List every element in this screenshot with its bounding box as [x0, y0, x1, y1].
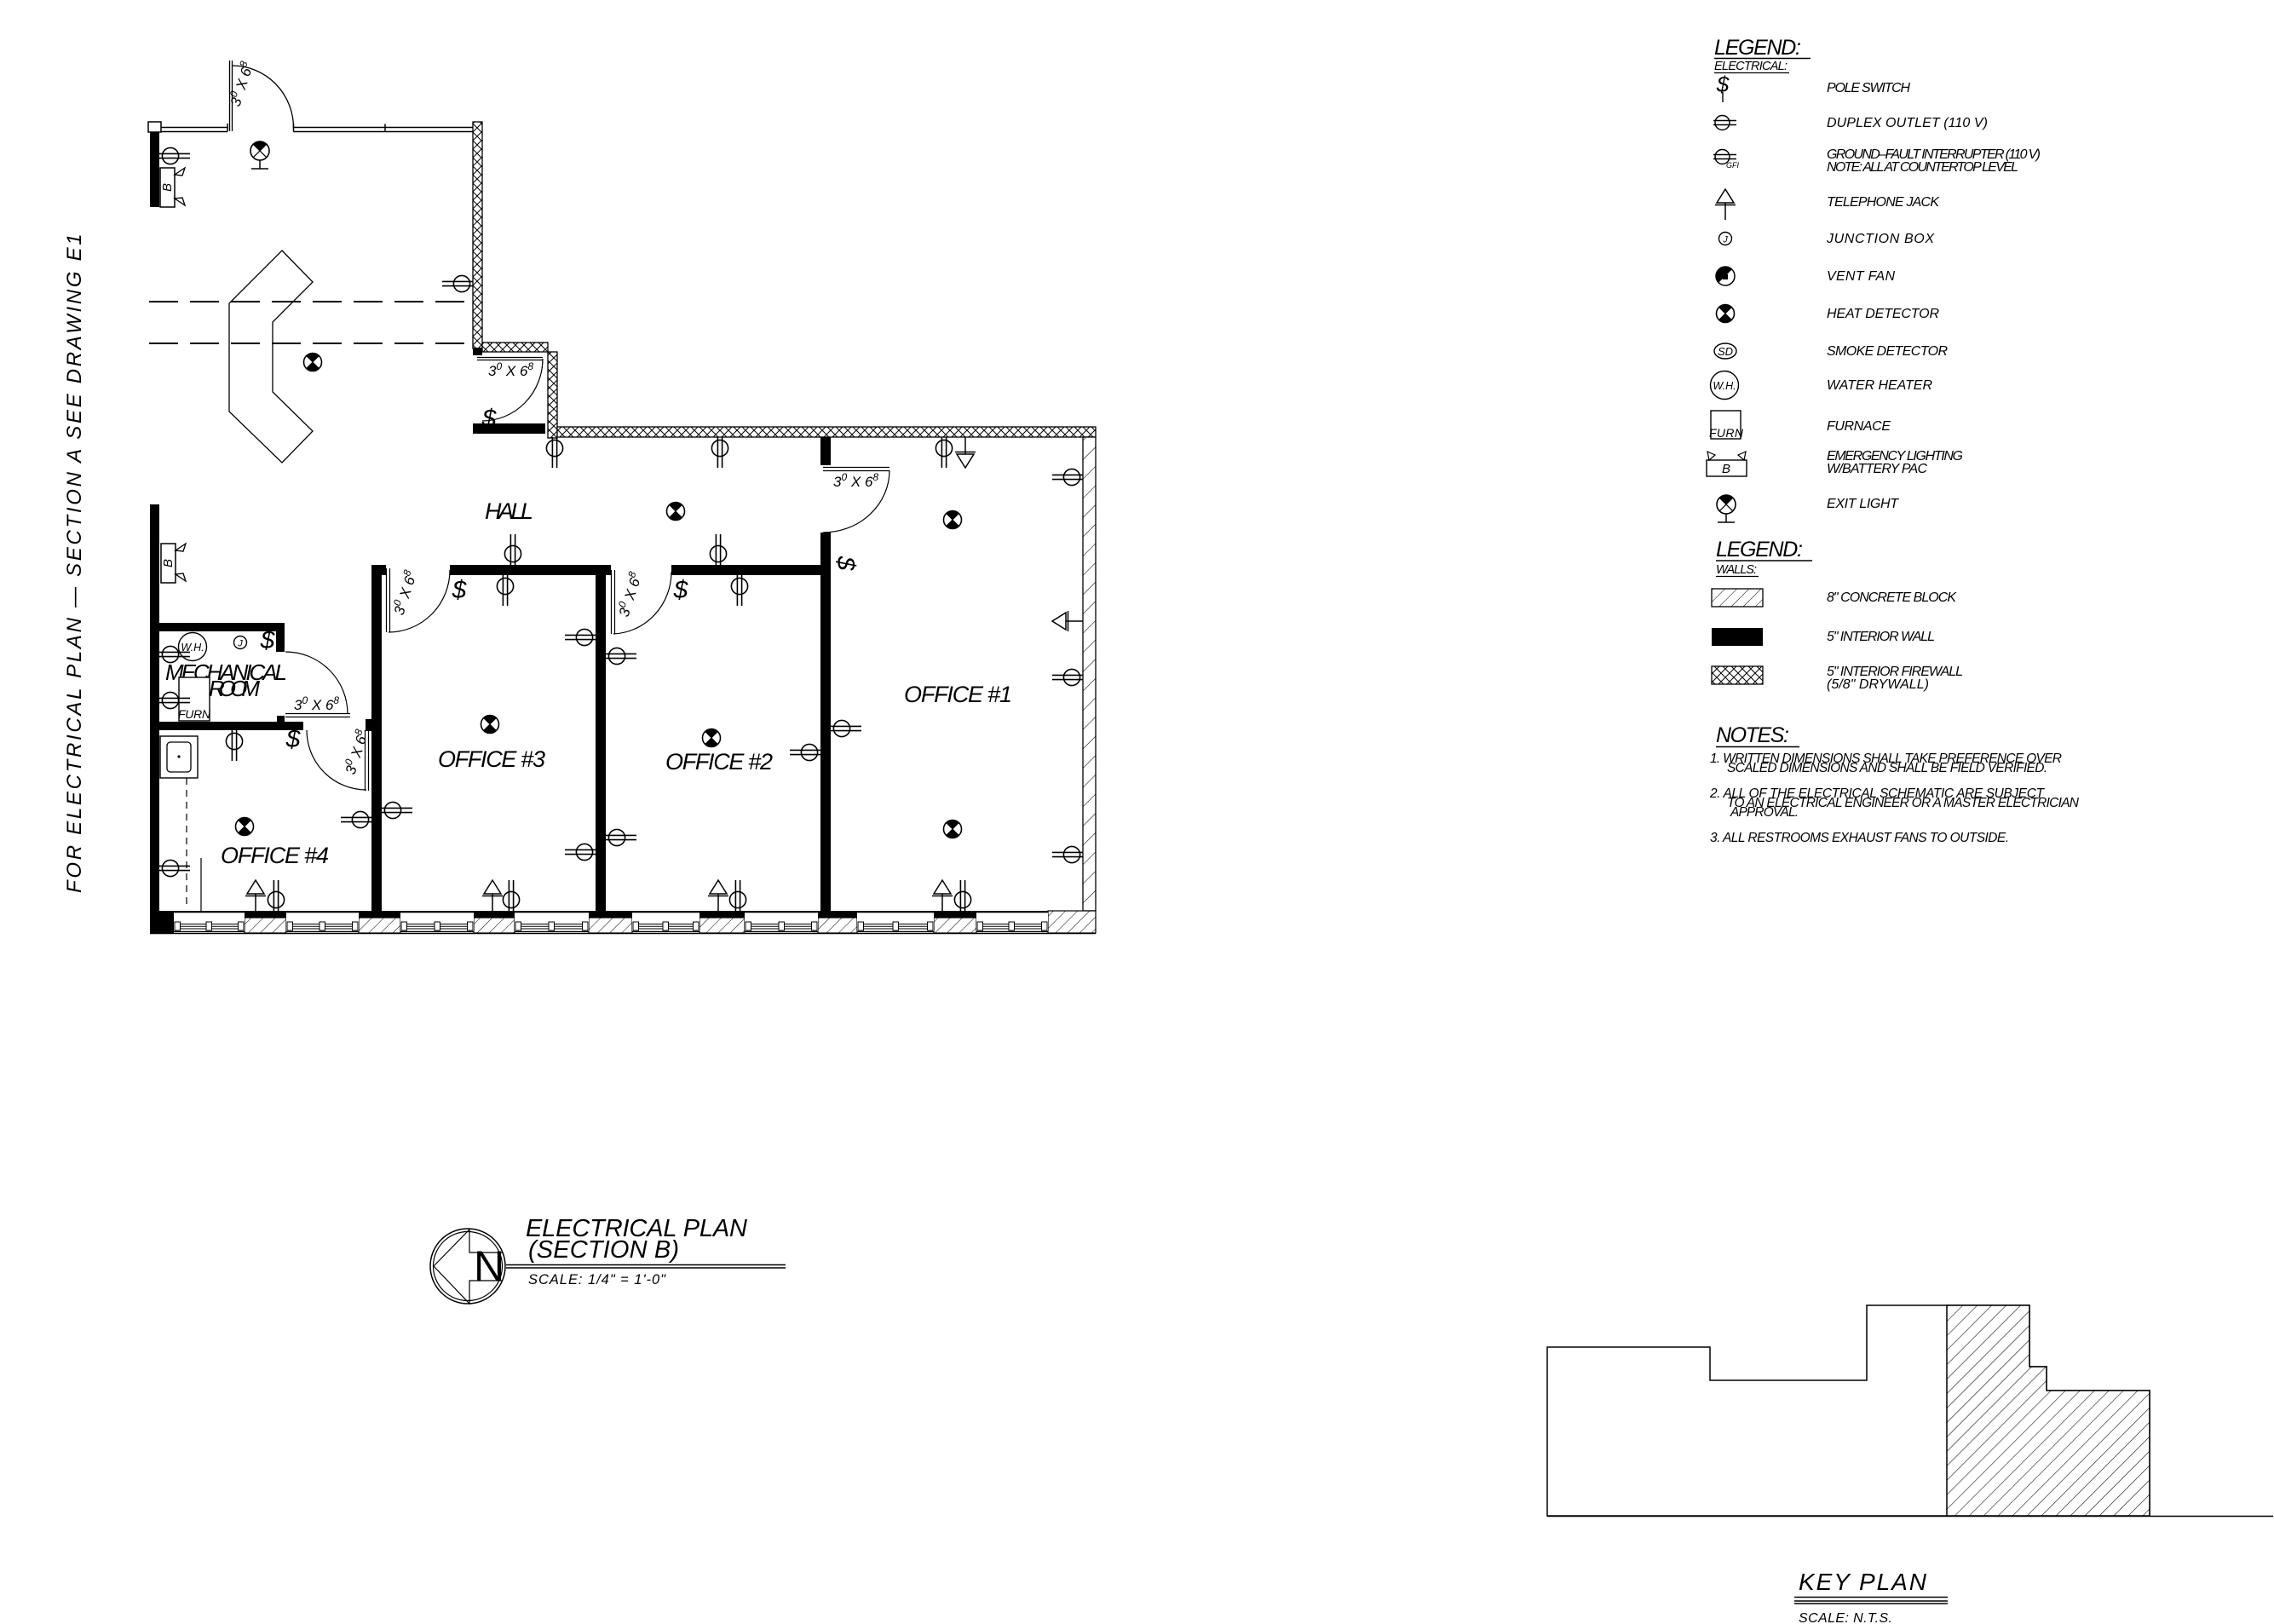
svg-text:(SECTION B): (SECTION B) [528, 1236, 680, 1264]
svg-text:B: B [161, 559, 176, 567]
svg-text:NOTE: ALL AT COUNTERTOP LEVEL: NOTE: ALL AT COUNTERTOP LEVEL [1827, 160, 2018, 175]
svg-text:OFFICE #3: OFFICE #3 [438, 746, 545, 772]
svg-text:B: B [1722, 462, 1730, 476]
svg-text:30 X 68: 30 X 68 [833, 471, 878, 490]
svg-text:(5/8" DRYWALL): (5/8" DRYWALL) [1827, 677, 1929, 692]
svg-text:30 X 68: 30 X 68 [294, 694, 339, 713]
svg-text:5" INTERIOR WALL: 5" INTERIOR WALL [1827, 630, 1935, 644]
svg-text:FURN: FURN [178, 707, 211, 721]
svg-text:VENT FAN: VENT FAN [1827, 269, 1895, 284]
svg-text:OFFICE #2: OFFICE #2 [665, 749, 773, 775]
svg-text:OFFICE #4: OFFICE #4 [221, 843, 329, 868]
svg-text:30 X 68: 30 X 68 [488, 360, 533, 379]
svg-text:J: J [1722, 235, 1728, 245]
svg-text:GFI: GFI [1726, 161, 1739, 170]
svg-text:WATER HEATER: WATER HEATER [1827, 378, 1932, 393]
svg-text:B: B [160, 183, 175, 192]
svg-text:LEGEND:: LEGEND: [1716, 538, 1804, 561]
svg-text:SD: SD [1718, 345, 1733, 358]
svg-text:J: J [237, 639, 243, 649]
svg-text:FURN: FURN [1709, 426, 1744, 440]
svg-text:NOTES:: NOTES: [1716, 723, 1790, 747]
svg-text:KEY PLAN: KEY PLAN [1799, 1569, 1928, 1595]
svg-text:8" CONCRETE BLOCK: 8" CONCRETE BLOCK [1827, 590, 1957, 605]
svg-text:N: N [474, 1242, 504, 1290]
svg-text:WALLS:: WALLS: [1716, 563, 1757, 577]
svg-text:ROOM: ROOM [209, 676, 260, 701]
svg-text:W/BATTERY PAC: W/BATTERY PAC [1827, 462, 1927, 476]
svg-text:HEAT DETECTOR: HEAT DETECTOR [1827, 307, 1939, 321]
svg-text:HALL: HALL [485, 498, 536, 524]
svg-text:SMOKE DETECTOR: SMOKE DETECTOR [1827, 344, 1948, 359]
svg-text:SCALED DIMENSIONS AND SHALL BE: SCALED DIMENSIONS AND SHALL BE FIELD VER… [1727, 761, 2047, 775]
svg-text:W.H.: W.H. [1713, 380, 1736, 392]
svg-text:FURNACE: FURNACE [1827, 419, 1891, 434]
svg-text:POLE SWITCH: POLE SWITCH [1827, 81, 1910, 95]
svg-text:OFFICE #1: OFFICE #1 [904, 682, 1012, 707]
svg-text:FOR ELECTRICAL PLAN — SECTION: FOR ELECTRICAL PLAN — SECTION A SEE DRAW… [63, 232, 86, 893]
svg-text:SCALE: N.T.S.: SCALE: N.T.S. [1799, 1611, 1892, 1624]
svg-text:JUNCTION BOX: JUNCTION BOX [1826, 232, 1935, 246]
svg-text:DUPLEX OUTLET (110 V): DUPLEX OUTLET (110 V) [1827, 116, 1988, 130]
svg-text:APPROVAL.: APPROVAL. [1730, 805, 1799, 820]
svg-text:EXIT LIGHT: EXIT LIGHT [1827, 497, 1899, 511]
svg-text:3. ALL RESTROOMS EXHAUST FANS: 3. ALL RESTROOMS EXHAUST FANS TO OUTSIDE… [1710, 831, 2009, 845]
svg-text:LEGEND:: LEGEND: [1714, 36, 1802, 60]
svg-text:TELEPHONE JACK: TELEPHONE JACK [1827, 195, 1940, 210]
svg-text:SCALE: 1/4" = 1'-0": SCALE: 1/4" = 1'-0" [528, 1272, 666, 1287]
